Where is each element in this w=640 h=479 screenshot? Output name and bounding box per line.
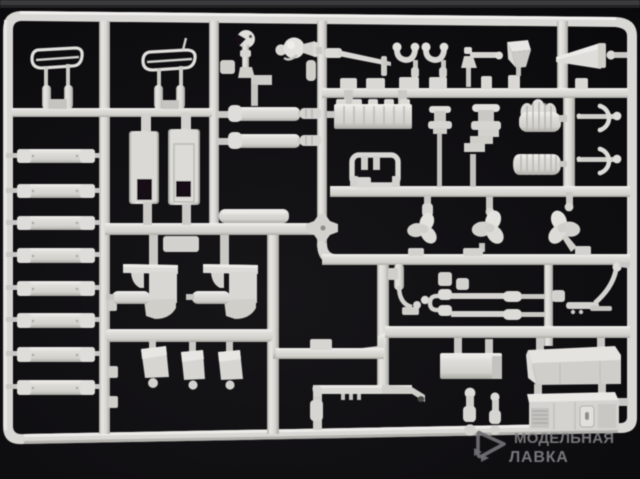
svg-text:МОДЕЛЬНАЯ: МОДЕЛЬНАЯ xyxy=(514,430,614,447)
svg-text:ЛАВКА: ЛАВКА xyxy=(509,449,569,466)
